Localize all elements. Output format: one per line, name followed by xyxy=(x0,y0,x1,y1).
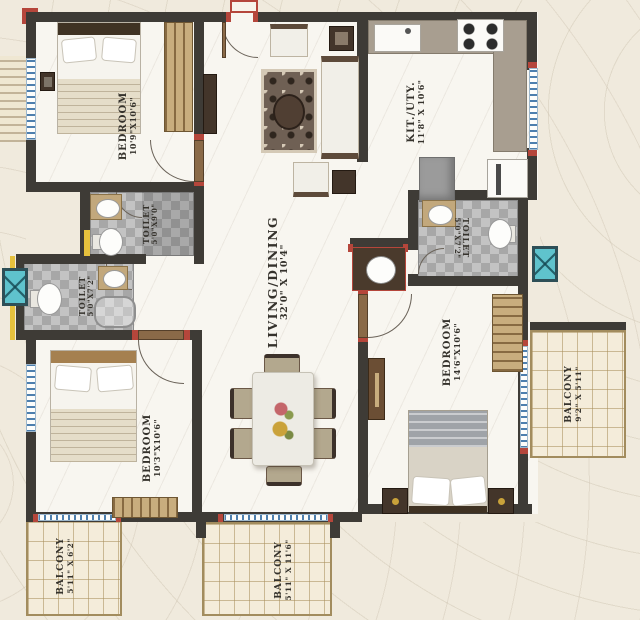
bed-bottom-left xyxy=(50,350,137,462)
wall xyxy=(22,330,138,340)
label-balcony-center: BALCONY 5'11" X 11'6" xyxy=(274,525,294,615)
planter-right xyxy=(532,246,558,282)
dining-table xyxy=(252,372,314,466)
bed-pillow xyxy=(96,364,134,392)
centerpiece-flowers xyxy=(267,399,299,443)
bed-pillow xyxy=(101,37,137,64)
bed-blanket xyxy=(51,409,136,462)
label-toilet-top: TOILET 5'0"X9'0" xyxy=(141,192,159,256)
window-mark xyxy=(528,150,537,156)
wall xyxy=(358,340,368,514)
label-balcony-right: BALCONY 9'2" X 5'11" xyxy=(564,349,584,439)
wall xyxy=(408,276,528,286)
label-bedroom-right: BEDROOM 14'6"X10'6" xyxy=(441,297,463,407)
planter-left xyxy=(2,268,28,306)
washbasin xyxy=(90,194,122,220)
label-toilet-right: TOILET 5'0"X7'2" xyxy=(453,206,471,270)
toilet-wc xyxy=(488,216,516,250)
bed-blanket xyxy=(409,411,487,447)
nightstand xyxy=(488,488,514,514)
wall xyxy=(530,322,626,330)
wall xyxy=(518,190,528,288)
bed-headboard xyxy=(51,351,136,363)
label-bedroom-top-left: BEDROOM 10'9"X10'6" xyxy=(117,71,139,181)
label-balcony-left: BALCONY 5'11" X 6'2" xyxy=(56,521,76,611)
window xyxy=(26,364,36,432)
wall xyxy=(26,330,36,366)
side-table xyxy=(332,170,356,194)
armchair xyxy=(270,24,308,57)
bathtub xyxy=(94,296,136,328)
wall xyxy=(408,274,418,286)
wall xyxy=(26,430,36,522)
door-jamb xyxy=(226,12,231,22)
label-living-dining: LIVING/DINING 32'0" X 10'4" xyxy=(265,207,291,357)
room-name: LIVING/DINING xyxy=(266,216,279,348)
kitchen-sink xyxy=(374,24,421,52)
window-mark xyxy=(33,514,38,522)
dining-chair xyxy=(266,466,302,486)
wardrobe-right xyxy=(492,294,523,372)
room-dims: 10'9"X10'6" xyxy=(129,97,137,155)
exterior-notch xyxy=(362,514,538,522)
label-toilet-left: TOILET 5'0"X7'2" xyxy=(77,264,95,328)
bed-pillow xyxy=(411,476,451,507)
side-table xyxy=(329,26,354,51)
vanity-basin xyxy=(352,247,406,291)
bed-pillow xyxy=(61,36,97,63)
door-jamb xyxy=(184,330,190,340)
door-leaf-bedroom-bl xyxy=(138,330,184,340)
dining-chair xyxy=(312,428,336,459)
window-mark xyxy=(528,62,537,68)
armchair xyxy=(293,162,329,197)
washbasin xyxy=(98,266,128,290)
refrigerator xyxy=(487,159,528,198)
wardrobe-top-left xyxy=(164,22,193,132)
dresser xyxy=(368,358,385,420)
window xyxy=(529,68,538,150)
label-kitchen: KIT./UTY. 11'8" X 10'6" xyxy=(405,57,427,167)
room-dims: 5'0"X9'0" xyxy=(151,204,158,245)
exterior-notch xyxy=(26,192,80,254)
room-dims: 5'11" X 11'6" xyxy=(285,539,293,600)
door-leaf-bedroom-tl xyxy=(194,140,204,182)
toilet-wc xyxy=(92,226,122,256)
room-dims: 5'0"X7'2" xyxy=(87,276,94,317)
floor-plan: BEDROOM 10'9"X10'6" KIT./UTY. 11'8" X 10… xyxy=(0,0,640,620)
sofa xyxy=(321,56,359,159)
yellow-wall-accent xyxy=(84,230,90,256)
nightstand xyxy=(382,488,408,514)
wall xyxy=(26,182,204,192)
room-dims: 9'2" X 5'11" xyxy=(575,366,583,422)
label-bedroom-bottom-left: BEDROOM 10'3"X10'6" xyxy=(141,393,163,503)
tv-unit xyxy=(40,72,55,91)
room-dims: 11'8" X 10'6" xyxy=(417,80,425,145)
console-table xyxy=(203,74,217,134)
dining-chair xyxy=(230,388,254,419)
dining-chair xyxy=(230,428,254,459)
window-mark xyxy=(520,448,528,454)
door-jamb xyxy=(253,12,258,22)
wall xyxy=(350,238,408,247)
gas-stove xyxy=(457,19,504,52)
bed-headboard xyxy=(58,23,140,35)
room-dims: 32'0" X 10'4" xyxy=(280,244,290,320)
door-leaf-bedroom-r xyxy=(358,294,368,338)
window xyxy=(26,58,36,140)
louver-panel xyxy=(0,56,29,142)
room-dims: 5'0"X7'2" xyxy=(454,218,461,259)
wall xyxy=(408,190,418,250)
door-leaf-entry xyxy=(222,22,226,58)
room-dims: 5'11" X 6'2" xyxy=(67,538,75,594)
bed-pillow xyxy=(54,364,92,392)
corner-mark xyxy=(22,8,26,24)
window-mark xyxy=(328,514,333,522)
dining-chair xyxy=(264,354,300,374)
coffee-table xyxy=(273,94,305,130)
room-dims: 10'3"X10'6" xyxy=(153,419,161,477)
wall xyxy=(196,512,206,538)
window-mark xyxy=(218,514,223,522)
window xyxy=(224,514,328,521)
window xyxy=(38,514,116,521)
wall xyxy=(194,182,204,264)
balcony-center-floor xyxy=(202,522,332,616)
wall xyxy=(26,138,36,192)
bed-right xyxy=(408,410,488,512)
bed-headboard xyxy=(409,506,487,513)
washbasin xyxy=(422,200,456,227)
bed-pillow xyxy=(450,475,488,507)
dining-chair xyxy=(312,388,336,419)
room-name: TOILET xyxy=(461,218,469,258)
room-dims: 14'6"X10'6" xyxy=(453,323,461,381)
wall xyxy=(26,12,36,60)
wall xyxy=(192,330,202,522)
toilet-wc xyxy=(30,280,60,316)
